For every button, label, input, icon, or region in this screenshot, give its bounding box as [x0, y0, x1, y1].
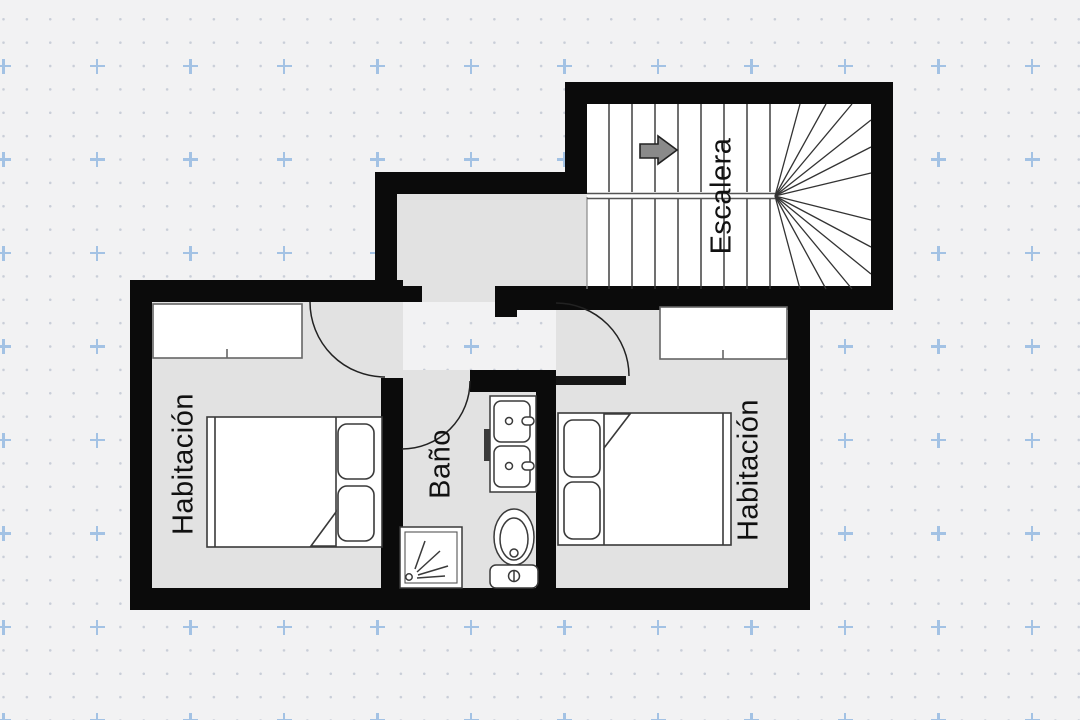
background-plus-mark — [277, 152, 292, 167]
background-plus-mark — [90, 713, 105, 720]
background-plus-mark — [931, 433, 946, 448]
background-plus-mark — [183, 713, 198, 720]
wall-bedroom-left-top — [130, 280, 403, 302]
background-plus-mark — [0, 339, 11, 354]
background-plus-mark — [183, 152, 198, 167]
wall-hall-top — [375, 172, 587, 194]
background-plus-mark — [90, 433, 105, 448]
wall-bath-east — [536, 370, 556, 610]
wall-stair-bottom — [517, 286, 893, 310]
background-plus-mark — [931, 339, 946, 354]
background-plus-mark — [183, 620, 198, 635]
background-plus-mark — [277, 620, 292, 635]
background-plus-mark — [90, 339, 105, 354]
background-plus-mark — [370, 620, 385, 635]
wall-bedroom-right-east — [788, 286, 810, 610]
background-plus-mark — [1025, 713, 1040, 720]
background-plus-mark — [370, 713, 385, 720]
background-plus-mark — [464, 59, 479, 74]
wall-stair-top — [565, 82, 893, 104]
background-plus-mark — [183, 246, 198, 261]
background-plus-mark — [557, 620, 572, 635]
background-plus-mark — [838, 59, 853, 74]
background-plus-mark — [90, 620, 105, 635]
background-plus-mark — [1025, 339, 1040, 354]
background-plus-mark — [0, 713, 11, 720]
room-label-bedroom-right: Habitación — [733, 399, 766, 541]
background-plus-mark — [1025, 152, 1040, 167]
background-plus-mark — [838, 339, 853, 354]
background-plus-mark — [464, 713, 479, 720]
background-plus-mark — [464, 339, 479, 354]
floorplan-canvas: Habitación Baño Habitación Escalera — [0, 0, 1080, 720]
wall-bath-north — [470, 370, 556, 392]
background-plus-mark — [1025, 433, 1040, 448]
background-plus-mark — [931, 526, 946, 541]
background-plus-mark — [1025, 246, 1040, 261]
background-plus-mark — [931, 59, 946, 74]
background-plus-mark — [0, 246, 11, 261]
background-plus-mark — [90, 152, 105, 167]
background-plus-mark — [838, 526, 853, 541]
background-plus-mark — [557, 713, 572, 720]
wall-outer-bottom — [130, 588, 810, 610]
wall-stair-right — [871, 82, 893, 310]
background-plus-mark — [1025, 526, 1040, 541]
background-plus-mark — [744, 713, 759, 720]
background-plus-mark — [183, 59, 198, 74]
background-plus-mark — [651, 620, 666, 635]
background-plus-mark — [744, 59, 759, 74]
background-plus-mark — [277, 246, 292, 261]
background-plus-mark — [277, 713, 292, 720]
background-plus-mark — [90, 59, 105, 74]
wall-stub-hall-a — [403, 286, 422, 302]
background-plus-mark — [277, 59, 292, 74]
background-plus-mark — [557, 59, 572, 74]
background-plus-mark — [838, 713, 853, 720]
background-plus-mark — [0, 59, 11, 74]
background-plus-mark — [0, 620, 11, 635]
room-label-staircase: Escalera — [706, 138, 739, 255]
wall-stub-hall-b — [495, 286, 517, 317]
background-plus-mark — [370, 152, 385, 167]
background-plus-mark — [931, 713, 946, 720]
background-plus-mark — [0, 152, 11, 167]
background-plus-mark — [0, 433, 11, 448]
background-plus-mark — [90, 246, 105, 261]
background-plus-mark — [838, 620, 853, 635]
background-plus-mark — [1025, 620, 1040, 635]
background-plus-mark — [651, 59, 666, 74]
background-plus-mark — [838, 433, 853, 448]
background-plus-mark — [0, 526, 11, 541]
background-plus-mark — [1025, 59, 1040, 74]
background-plus-mark — [464, 620, 479, 635]
background-plus-mark — [744, 620, 759, 635]
room-label-bathroom: Baño — [425, 429, 458, 499]
background-plus-mark — [931, 246, 946, 261]
background-plus-mark — [931, 152, 946, 167]
background-plus-mark — [651, 713, 666, 720]
room-label-bedroom-left: Habitación — [168, 393, 201, 535]
background-plus-mark — [464, 152, 479, 167]
wall-outer-left — [130, 280, 152, 610]
background-plus-mark — [931, 620, 946, 635]
background-plus-mark — [370, 59, 385, 74]
background-plus-mark — [90, 526, 105, 541]
wall-bedroom-bath-divider — [381, 378, 403, 610]
bathroom-floor — [403, 370, 536, 588]
